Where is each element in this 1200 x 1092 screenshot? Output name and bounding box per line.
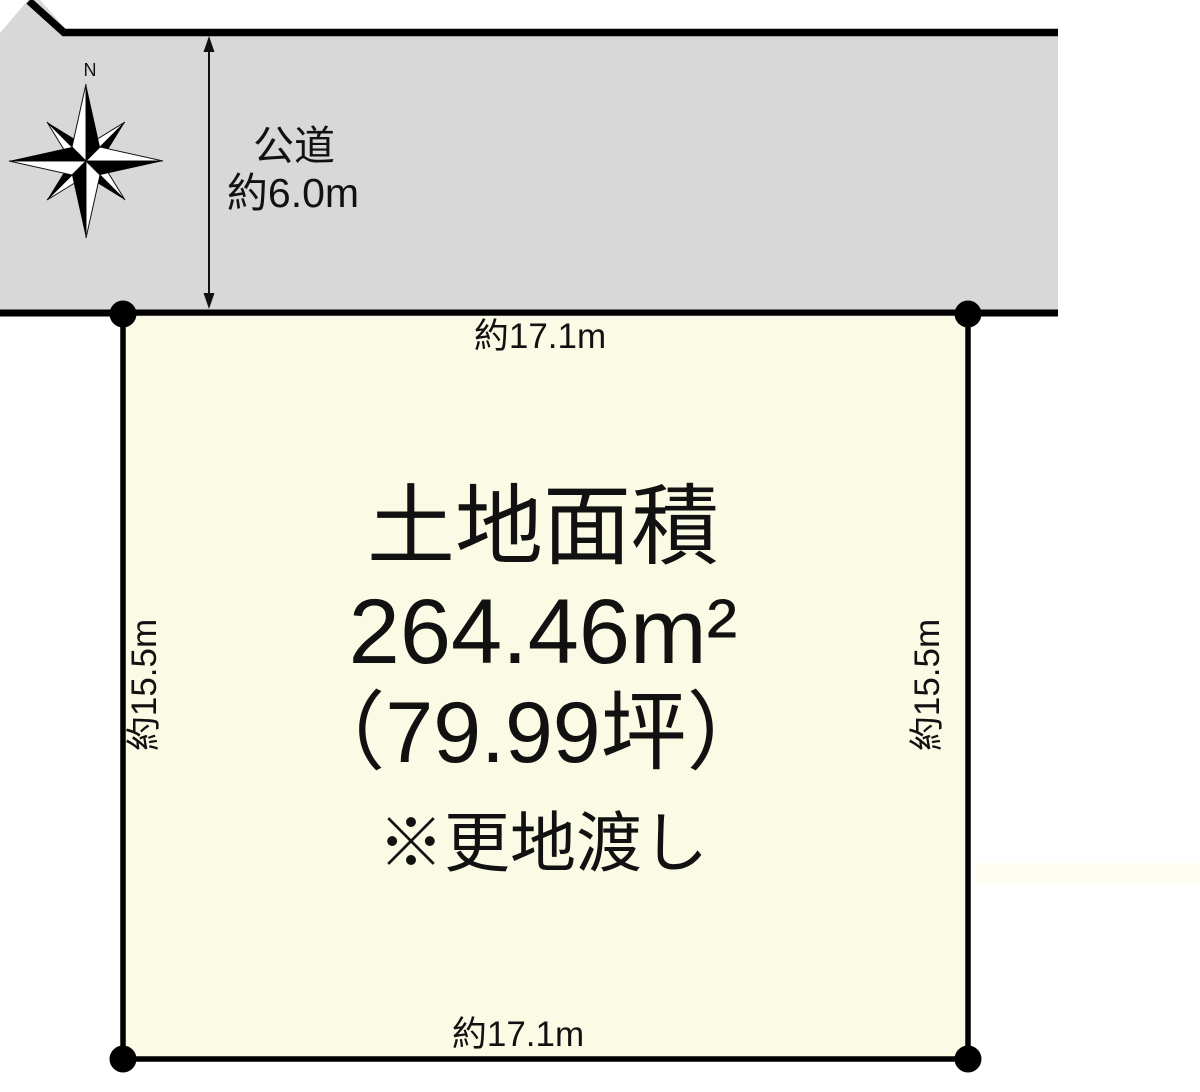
dimension-left-label: 約15.5m [125,619,164,751]
road-name-label: 公道 [253,123,335,169]
dimension-bottom-label: 約17.1m [452,1015,584,1054]
diagram-svg: N 公道 約6.0m 約17.1m 約17.1m 約15.5m 約15.5m 土… [0,0,1200,1092]
corner-dot-top-left [110,301,137,328]
dimension-right-label: 約15.5m [908,619,947,751]
compass-north-label: N [84,60,97,80]
plot-area-tsubo-label: （79.99坪） [299,685,772,781]
plot-area-sqm-label: 264.46m² [349,581,738,683]
corner-dot-bottom-right [955,1046,982,1073]
road-area [0,0,1058,313]
corner-dot-bottom-left [110,1046,137,1073]
land-plot-diagram: N 公道 約6.0m 約17.1m 約17.1m 約15.5m 約15.5m 土… [0,0,1200,1092]
plot-title-label: 土地面積 [367,477,719,576]
road-top-border [29,1,1058,33]
dimension-top-label: 約17.1m [474,317,606,356]
plot-note-label: ※更地渡し [378,806,708,880]
road-width-label: 約6.0m [227,170,359,216]
corner-dot-top-right [955,301,982,328]
faded-parcel-strip [976,863,1200,885]
